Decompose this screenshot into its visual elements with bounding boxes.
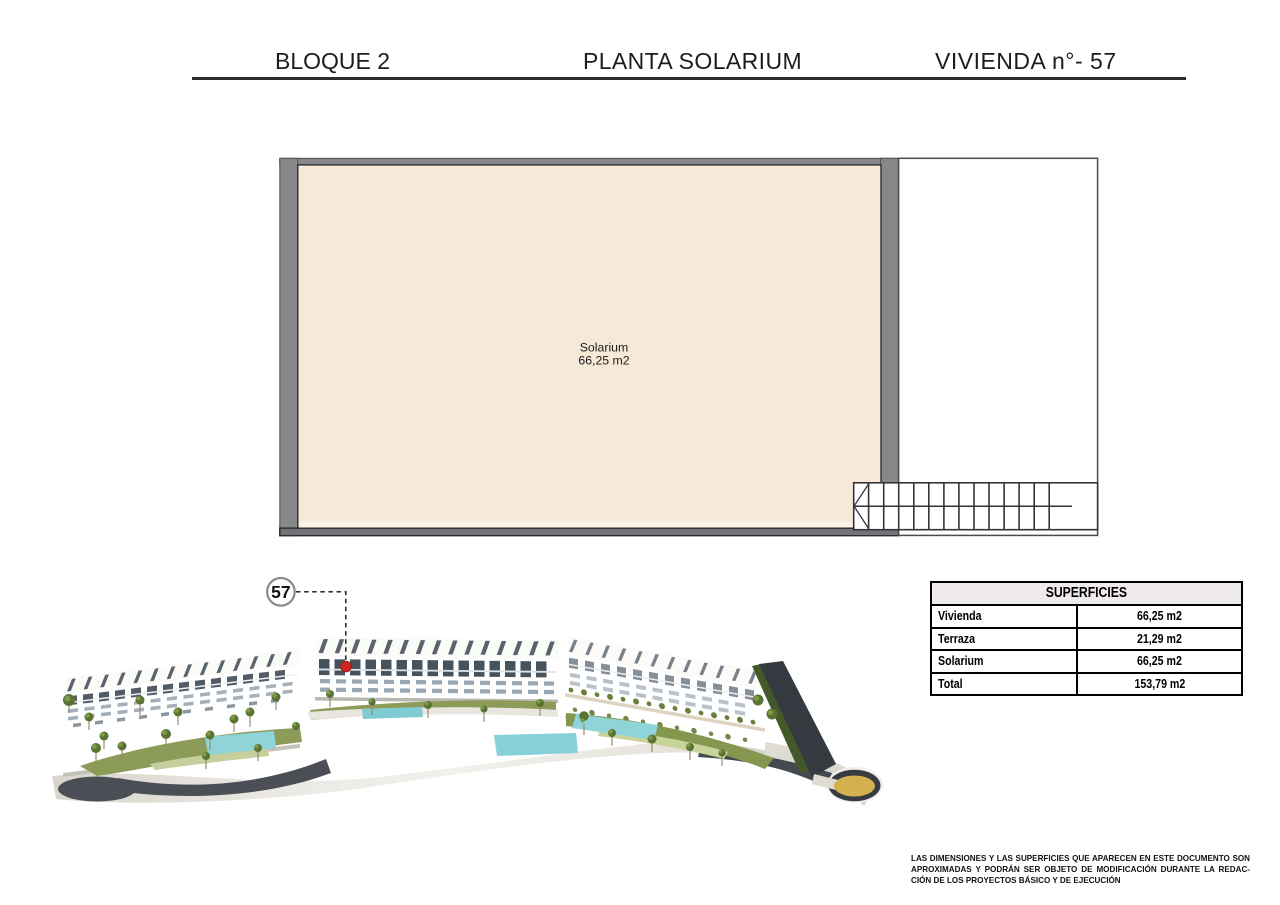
- svg-text:Solarium: Solarium: [580, 341, 629, 355]
- svg-text:66,25 m2: 66,25 m2: [578, 354, 629, 368]
- svg-text:57: 57: [271, 582, 290, 602]
